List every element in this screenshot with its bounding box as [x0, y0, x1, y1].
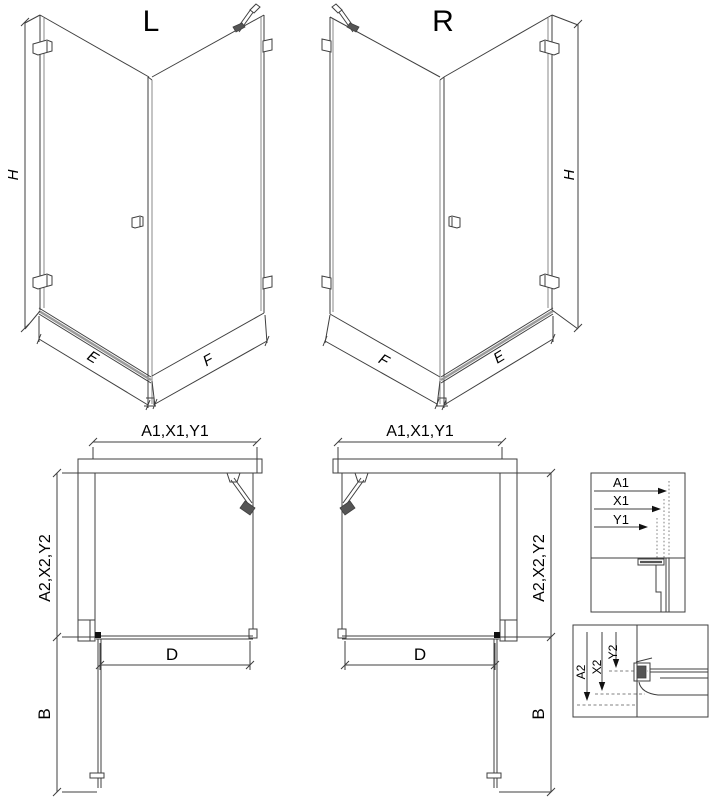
wall-bracket-bottom [322, 276, 331, 289]
support-brace-plan [340, 473, 368, 515]
wall-hatch-right [500, 473, 517, 620]
dim-label-A1: A1 [613, 475, 629, 490]
door-plan [90, 632, 104, 788]
support-brace [233, 4, 260, 32]
side-panel [330, 17, 440, 377]
hinge-top [33, 40, 52, 55]
dim-label-A2X2Y2: A2,X2,Y2 [37, 534, 54, 602]
dim-label-A1X1Y1: A1,X1,Y1 [141, 423, 209, 440]
wall-bracket-top [322, 39, 331, 52]
panel-foot [249, 629, 257, 638]
dimension-opening: D [341, 641, 499, 670]
dim-label-X1: X1 [613, 493, 629, 508]
dimension-opening: D [96, 641, 254, 670]
hinge-bottom [540, 274, 559, 289]
profile-section [634, 658, 708, 695]
detail-view-bottom: A2 X2 Y2 [573, 625, 708, 717]
door-foot [90, 773, 104, 778]
side-panel [152, 15, 264, 376]
wall-bracket-bottom [263, 276, 272, 289]
dim-label-D: D [166, 645, 178, 664]
door-panel [39, 15, 156, 406]
iso-view-left: L [5, 4, 272, 410]
wall-hatch-top [333, 459, 517, 473]
dim-label-A2X2Y2: A2,X2,Y2 [531, 534, 548, 602]
support-brace [332, 4, 359, 32]
dim-label-F: F [376, 351, 393, 371]
door-plan [487, 632, 501, 788]
threshold-plan [96, 636, 253, 639]
dimension-door-width: E [442, 316, 555, 410]
door-handle [449, 216, 460, 228]
support-brace-plan [227, 473, 255, 515]
wall-profile [78, 620, 95, 641]
door-handle [132, 216, 143, 228]
dim-label-A1X1Y1: A1,X1,Y1 [386, 423, 454, 440]
dimension-top: A1,X1,Y1 [334, 423, 506, 473]
variant-label-right: R [432, 5, 454, 38]
hinge-top [540, 40, 559, 55]
dim-label-Y1: Y1 [613, 512, 629, 527]
door-panel [436, 15, 553, 406]
dim-label-E: E [491, 347, 509, 367]
wall-hatch-left [78, 473, 95, 620]
dim-label-Y2: Y2 [606, 644, 620, 659]
panel-foot [338, 629, 346, 638]
plan-view-right: A1,X1,Y1 A2,X2,Y2 B D [333, 423, 555, 796]
dim-label-E: E [84, 348, 102, 368]
door-foot [487, 773, 501, 778]
dim-label-X2: X2 [590, 659, 604, 674]
dim-label-H: H [561, 169, 578, 180]
variant-label-left: L [143, 5, 160, 38]
iso-view-right: R [322, 4, 582, 410]
dimension-door-width: E [37, 316, 150, 410]
threshold-plan [342, 636, 499, 639]
dim-label-D: D [414, 645, 426, 664]
hinge-bottom [33, 274, 52, 289]
dim-label-H: H [5, 169, 22, 180]
hinge-pivot [95, 632, 101, 638]
dim-label-A2: A2 [574, 664, 588, 679]
wall-hatch-top [78, 459, 262, 473]
dimension-side-width: F [152, 315, 269, 409]
dimension-top: A1,X1,Y1 [89, 423, 261, 473]
dimension-side-width: F [323, 315, 440, 409]
dim-label-F: F [200, 350, 217, 370]
dim-label-B: B [35, 708, 54, 719]
plan-view-left: A1,X1,Y1 A2,X2,Y2 B D [35, 423, 262, 796]
wall-profile [500, 620, 517, 641]
wall-bracket-top [263, 39, 272, 52]
detail-view-top: A1 X1 Y1 [591, 473, 685, 612]
hinge-pivot [494, 632, 500, 638]
shower-enclosure-technical-drawing: L [0, 0, 720, 800]
dim-label-B: B [529, 708, 548, 719]
profile-section [638, 558, 669, 612]
